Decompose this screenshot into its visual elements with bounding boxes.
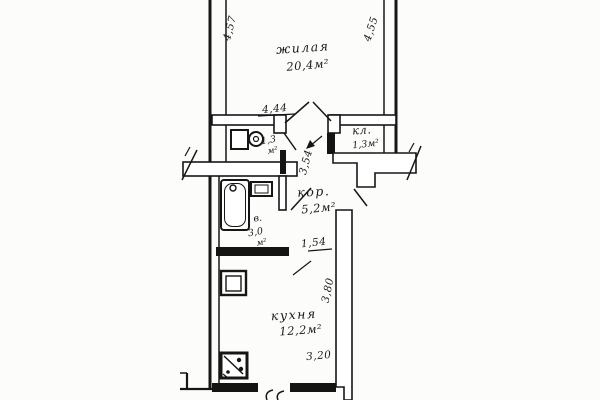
- dim-living-left: 4,57: [221, 14, 239, 43]
- balcony-door-mark-1: [266, 390, 273, 400]
- dim-living-right: 4,55: [361, 15, 381, 44]
- wall-closet-left: [327, 133, 335, 154]
- bathtub-icon: [221, 180, 249, 230]
- floor-plan-canvas: 1,3 м² кл. 1,3м² 3,54 в. 3,0: [0, 0, 600, 400]
- corridor-area: 5,2м²: [301, 200, 337, 217]
- dim-hall-depth: 3,54: [297, 148, 315, 176]
- dim-leader-kitchen-opening: [293, 261, 311, 275]
- wall-break-tick-left: [185, 147, 190, 156]
- hall-dimension: 3,54: [297, 136, 322, 176]
- kitchen-sink-icon: [221, 271, 246, 295]
- toilet-door-swing: [284, 133, 296, 150]
- exterior-stub-bottom-left: [180, 373, 212, 389]
- dim-kitchen-width: 3,20: [306, 349, 332, 363]
- kitchen: кухня 12,2м² 3,80 3,20: [212, 210, 352, 400]
- wall-bathroom-right: [279, 176, 286, 210]
- bath-sink-icon: [251, 182, 272, 196]
- dim-kitchen-depth: 3,80: [320, 277, 337, 304]
- stove-icon: [221, 353, 247, 378]
- cross-wall-left: [182, 147, 297, 180]
- wall-toilet-right: [280, 150, 286, 174]
- balcony-door-mark-2: [277, 391, 284, 400]
- wall-kitchen-bottom-right: [290, 383, 336, 392]
- corridor-label: кор.: [297, 183, 331, 200]
- wall-break-tick-right: [409, 143, 414, 152]
- kitchen-label: кухня: [271, 306, 318, 323]
- door-leaf-right: [313, 102, 331, 121]
- wall-toilet-bottom: [183, 162, 297, 176]
- bathroom-area-unit: м²: [256, 237, 269, 249]
- floor-plan-document: 1,3 м² кл. 1,3м² 3,54 в. 3,0: [0, 0, 600, 400]
- closet-area: 1,3м²: [352, 138, 380, 152]
- entry-door-swing: [354, 189, 367, 206]
- door-leaf-left: [285, 102, 309, 123]
- wall-entry: [333, 153, 416, 187]
- living-room-label: жилая: [276, 38, 330, 57]
- wall-kitchen-bottom-left: [212, 383, 258, 392]
- door-jamb-left: [274, 115, 286, 133]
- dim-arrowhead-hall: [306, 140, 315, 149]
- door-jamb-right: [328, 115, 340, 133]
- wall-kitchen-right: [336, 210, 352, 400]
- toilet-area-unit: м²: [267, 145, 280, 157]
- toilet-icon: [231, 130, 263, 149]
- kitchen-area: 12,2м²: [279, 322, 323, 339]
- living-room: жилая 20,4м² 4,57 4,55 4,44: [221, 14, 381, 116]
- entry-wall: [333, 143, 421, 206]
- closet-label: кл.: [352, 122, 372, 137]
- dim-line-corridor: [308, 249, 332, 251]
- corridor: кор. 5,2м² 1,54: [293, 183, 337, 275]
- wall-bathroom-bottom: [216, 247, 289, 256]
- bathroom-label: в.: [253, 213, 263, 225]
- living-room-area: 20,4м²: [285, 56, 330, 74]
- dim-corridor-opening: 1,54: [300, 236, 327, 251]
